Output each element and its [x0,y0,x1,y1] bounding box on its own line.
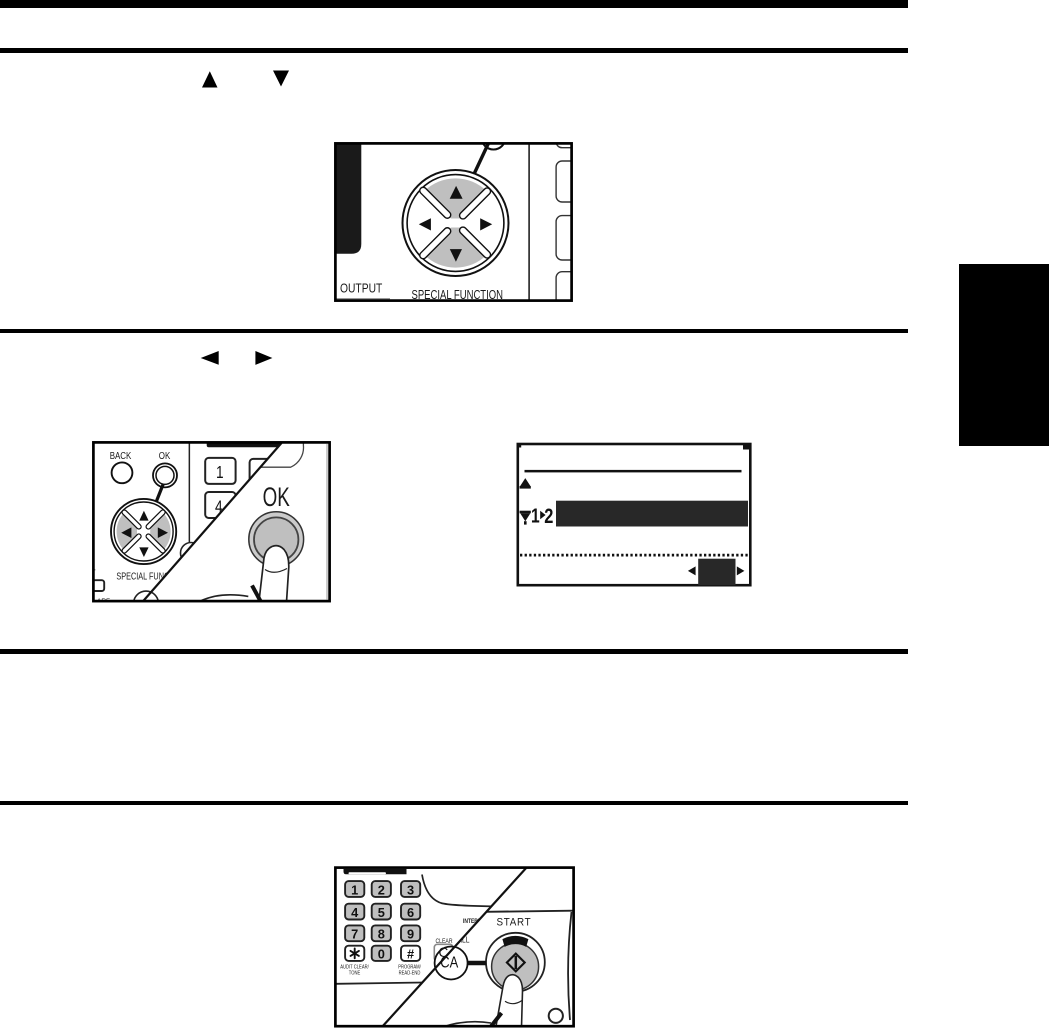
svg-text:START: START [497,916,532,929]
svg-text:5: 5 [378,905,385,920]
svg-text:1: 1 [531,505,540,527]
svg-text:0: 0 [378,947,385,962]
svg-text:CA: CA [440,954,458,971]
svg-text:6: 6 [407,905,414,920]
svg-text:8: 8 [378,927,385,942]
svg-text:SPECIAL FUNCTION: SPECIAL FUNCTION [116,570,186,581]
svg-text:7: 7 [351,927,358,942]
svg-text:2: 2 [378,882,385,897]
svg-text:TONE: TONE [349,970,360,976]
svg-text:OK: OK [159,450,170,461]
svg-text:1: 1 [216,464,224,483]
svg-text:3: 3 [407,882,414,897]
svg-text:4: 4 [351,905,359,920]
svg-text:BACK: BACK [110,450,132,461]
svg-text:READ-END: READ-END [399,970,421,976]
svg-text:AUDIT CLEAR/: AUDIT CLEAR/ [340,964,369,970]
svg-text:9: 9 [407,927,414,942]
svg-text:OUTPUT: OUTPUT [340,280,382,296]
svg-text:2: 2 [544,504,553,527]
svg-text:#: # [407,947,414,962]
svg-text:PROGRAM/: PROGRAM/ [398,964,421,970]
svg-text:1: 1 [351,882,358,897]
svg-text:OK: OK [263,482,291,512]
